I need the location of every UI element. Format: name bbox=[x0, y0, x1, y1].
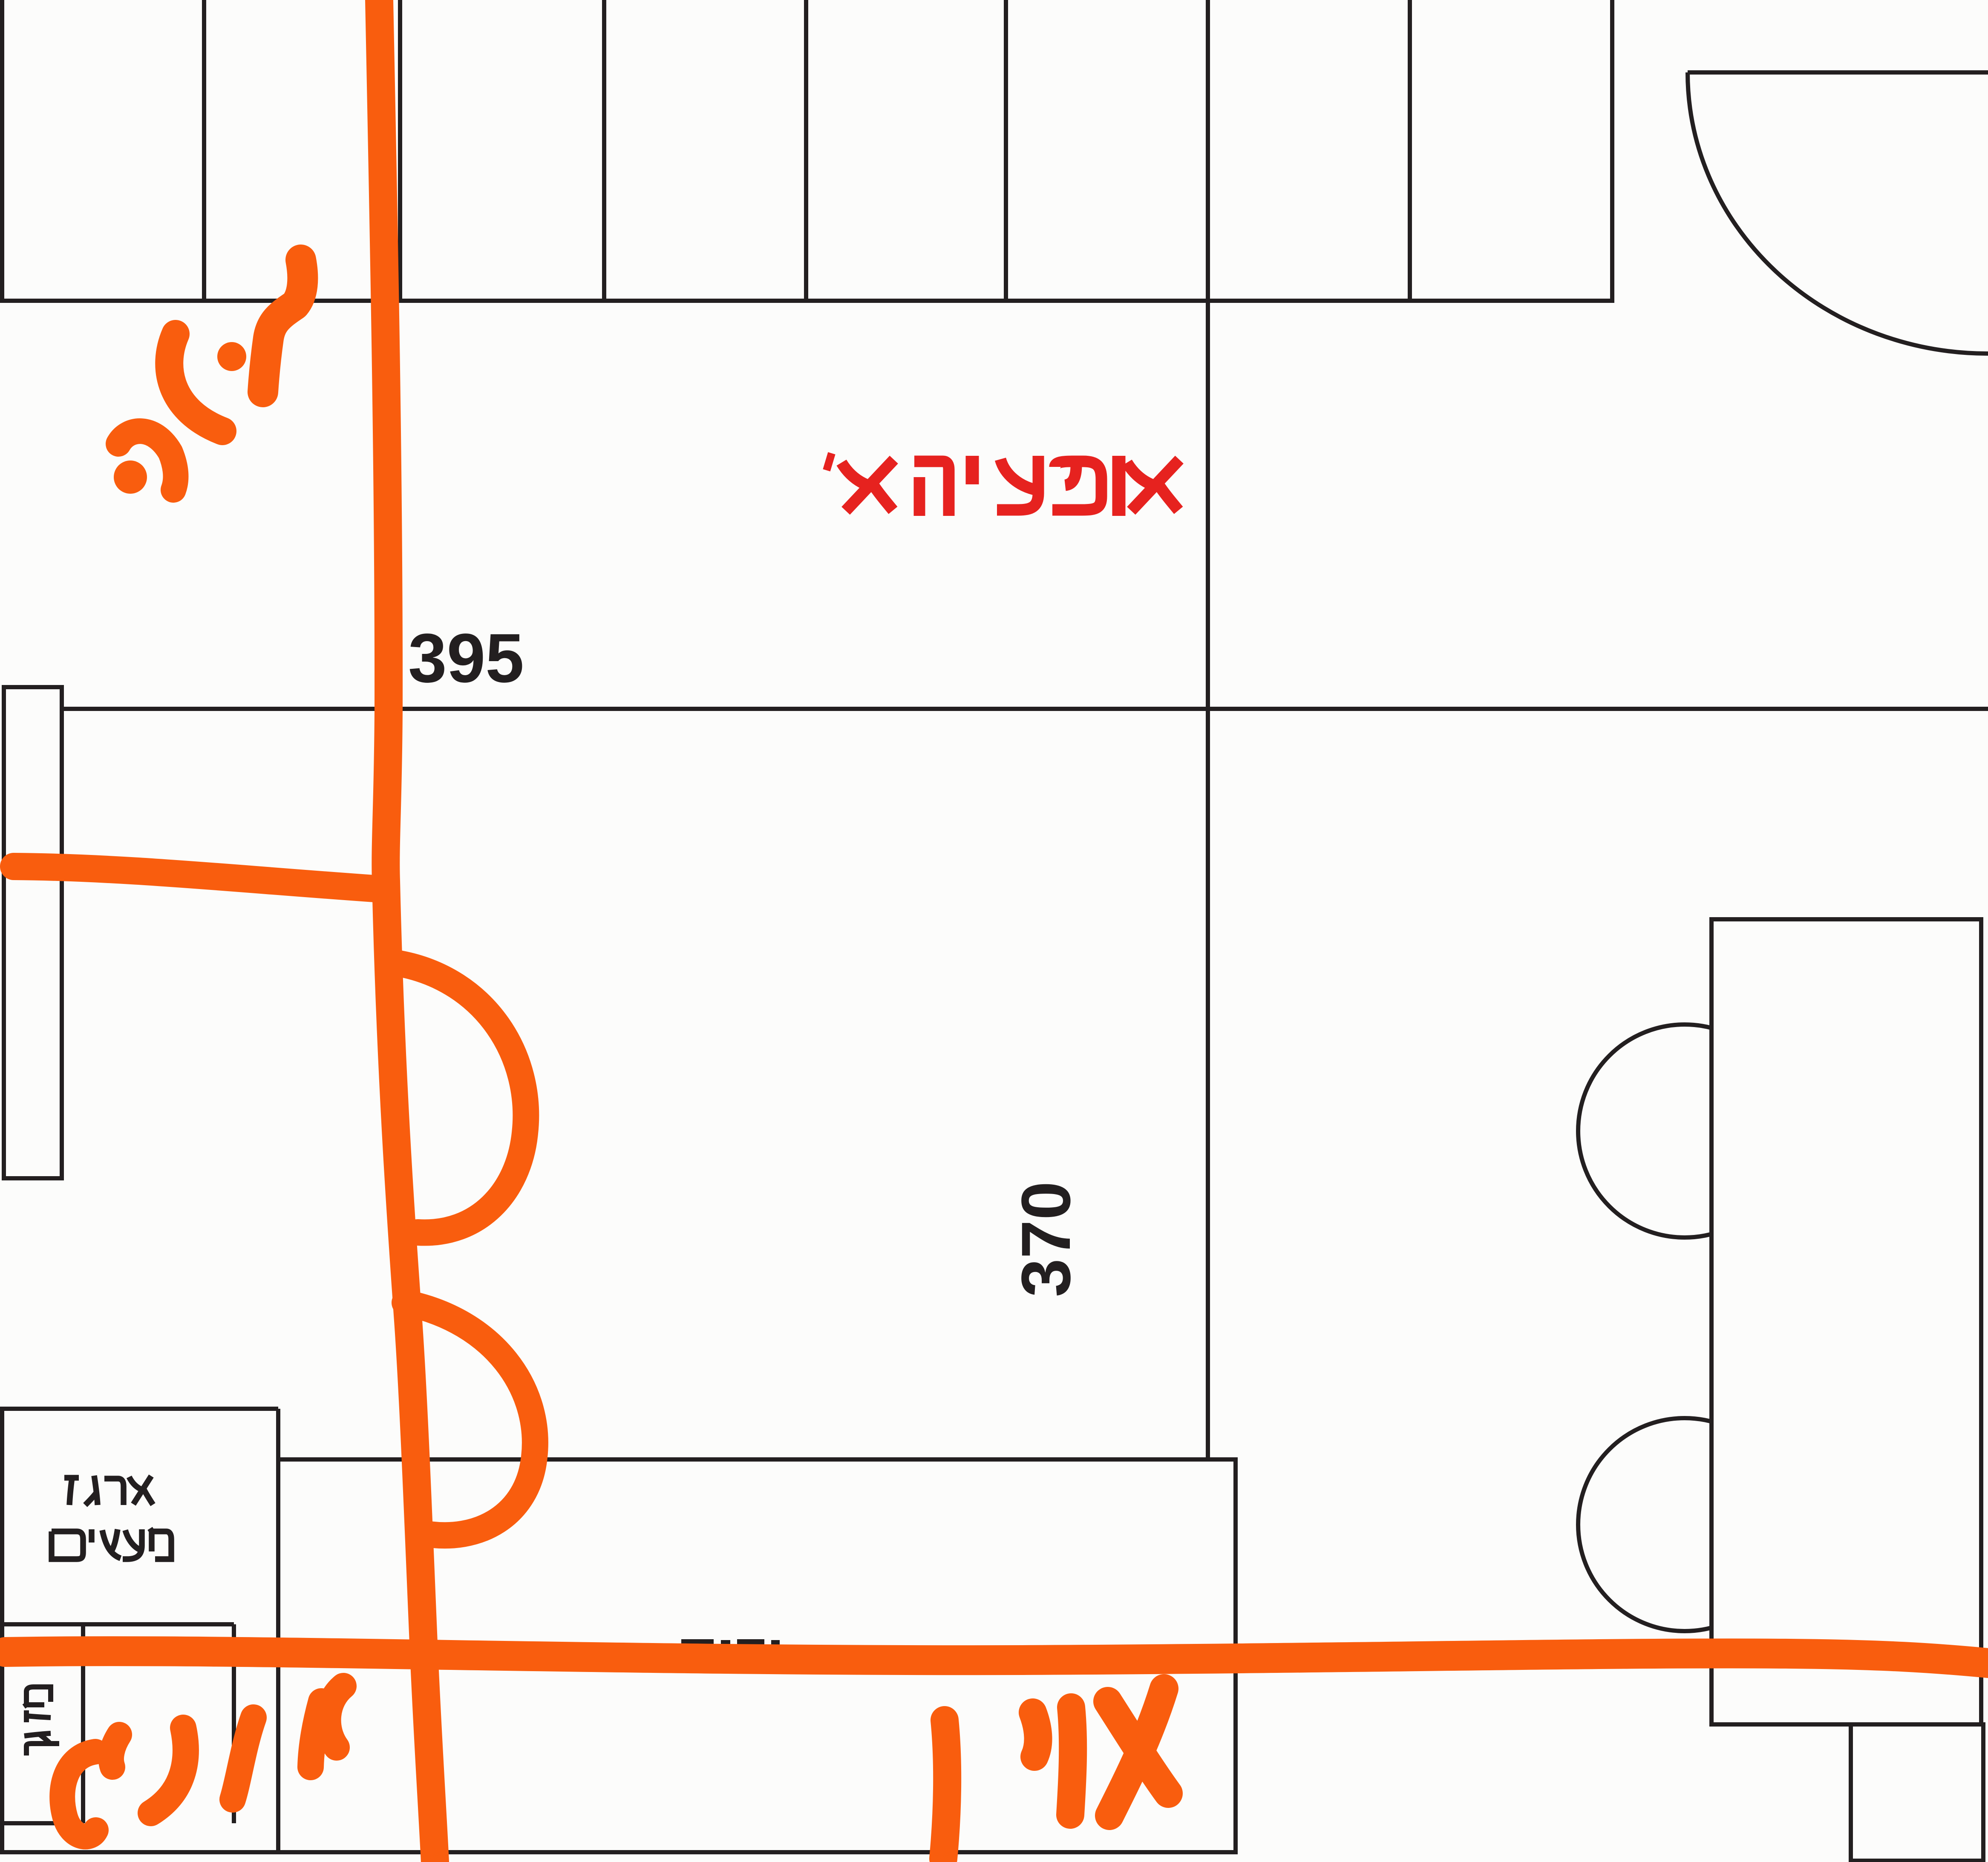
svg-text:395: 395 bbox=[408, 619, 524, 697]
svg-text:370: 370 bbox=[1007, 1181, 1085, 1297]
